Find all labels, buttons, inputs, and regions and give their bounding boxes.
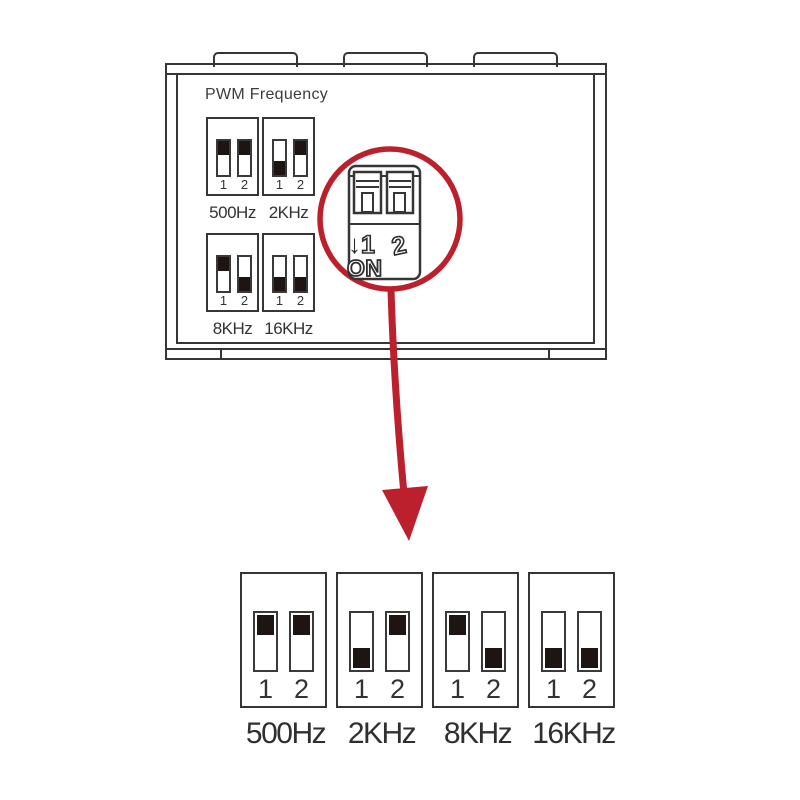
device-top-tab-2 [343, 52, 428, 67]
mini-dip-panel-16khz: 1216KHz [262, 233, 315, 312]
dip-slider-down [274, 161, 285, 175]
device-top-tab-3 [473, 52, 558, 67]
device-base-line [165, 348, 607, 350]
device-right-inner-wall [593, 74, 595, 344]
frequency-label: 500Hz [230, 717, 341, 751]
frequency-label: 16KHz [518, 717, 629, 751]
dip-slider-down [353, 648, 370, 668]
dip-slot-2 [237, 255, 252, 293]
dip-slider-down [295, 277, 306, 291]
dip-slot-2 [293, 255, 308, 293]
pin-number-1: 1 [272, 177, 287, 192]
pin-number-2: 2 [577, 674, 602, 705]
dip-slot-2 [237, 139, 252, 177]
dip-slot-2 [293, 139, 308, 177]
dip-slot-1 [541, 611, 566, 672]
dip-slider-down [485, 648, 502, 668]
frequency-label: 16KHz [255, 319, 322, 339]
pin-number-2: 2 [293, 293, 308, 308]
dip-slider-down [274, 277, 285, 291]
dip-slot-2 [289, 611, 314, 672]
pin-number-2: 2 [293, 177, 308, 192]
pin-number-1: 1 [216, 293, 231, 308]
callout-arrow-head [382, 486, 428, 541]
dip-slot-2 [481, 611, 506, 672]
dip-slider-up [257, 615, 274, 635]
big-dip-panel-500hz: 12500Hz [240, 572, 327, 708]
pin-number-1: 1 [541, 674, 566, 705]
dip-slot-2 [385, 611, 410, 672]
dip-slider-down [545, 648, 562, 668]
device-bottom-inner-line [176, 342, 595, 344]
big-dip-panel-16khz: 1216KHz [528, 572, 615, 708]
pin-number-1: 1 [216, 177, 231, 192]
dip-slot-1 [272, 255, 287, 293]
mini-dip-panel-2khz: 122KHz [262, 117, 315, 196]
dip-slot-1 [272, 139, 287, 177]
dip-slider-down [581, 648, 598, 668]
pin-number-2: 2 [481, 674, 506, 705]
dip-slider-up [239, 141, 250, 155]
dip-slot-1 [253, 611, 278, 672]
dip-slot-1 [445, 611, 470, 672]
big-dip-panel-2khz: 122KHz [336, 572, 423, 708]
frequency-label: 2KHz [255, 203, 322, 223]
pin-number-2: 2 [237, 177, 252, 192]
frequency-label: 8KHz [422, 717, 533, 751]
frequency-label: 2KHz [326, 717, 437, 751]
dip-slot-1 [216, 255, 231, 293]
dip-slider-up [449, 615, 466, 635]
pin-number-1: 1 [349, 674, 374, 705]
dip-slot-2 [577, 611, 602, 672]
device-base-divider-left [220, 350, 222, 358]
pin-number-1: 1 [272, 293, 287, 308]
device-top-rim-line [165, 73, 607, 75]
dip-slider-up [389, 615, 406, 635]
pwm-frequency-title: PWM Frequency [205, 86, 328, 104]
pin-number-2: 2 [289, 674, 314, 705]
dip-slot-1 [349, 611, 374, 672]
device-top-tab-1 [213, 52, 298, 67]
dip-slider-down [239, 277, 250, 291]
diagram-canvas: PWM Frequency 12500Hz122KHz128KHz1216KHz… [0, 0, 800, 800]
dip-slider-up [293, 615, 310, 635]
device-left-inner-wall [176, 74, 178, 344]
pin-number-1: 1 [445, 674, 470, 705]
dip-slider-up [295, 141, 306, 155]
dip-slider-up [218, 257, 229, 271]
mini-dip-panel-8khz: 128KHz [206, 233, 259, 312]
dip-slider-up [218, 141, 229, 155]
device-base-divider-right [548, 350, 550, 358]
pin-number-2: 2 [237, 293, 252, 308]
pin-number-2: 2 [385, 674, 410, 705]
pin-number-1: 1 [253, 674, 278, 705]
mini-dip-panel-500hz: 12500Hz [206, 117, 259, 196]
big-dip-panel-8khz: 128KHz [432, 572, 519, 708]
dip-slot-1 [216, 139, 231, 177]
